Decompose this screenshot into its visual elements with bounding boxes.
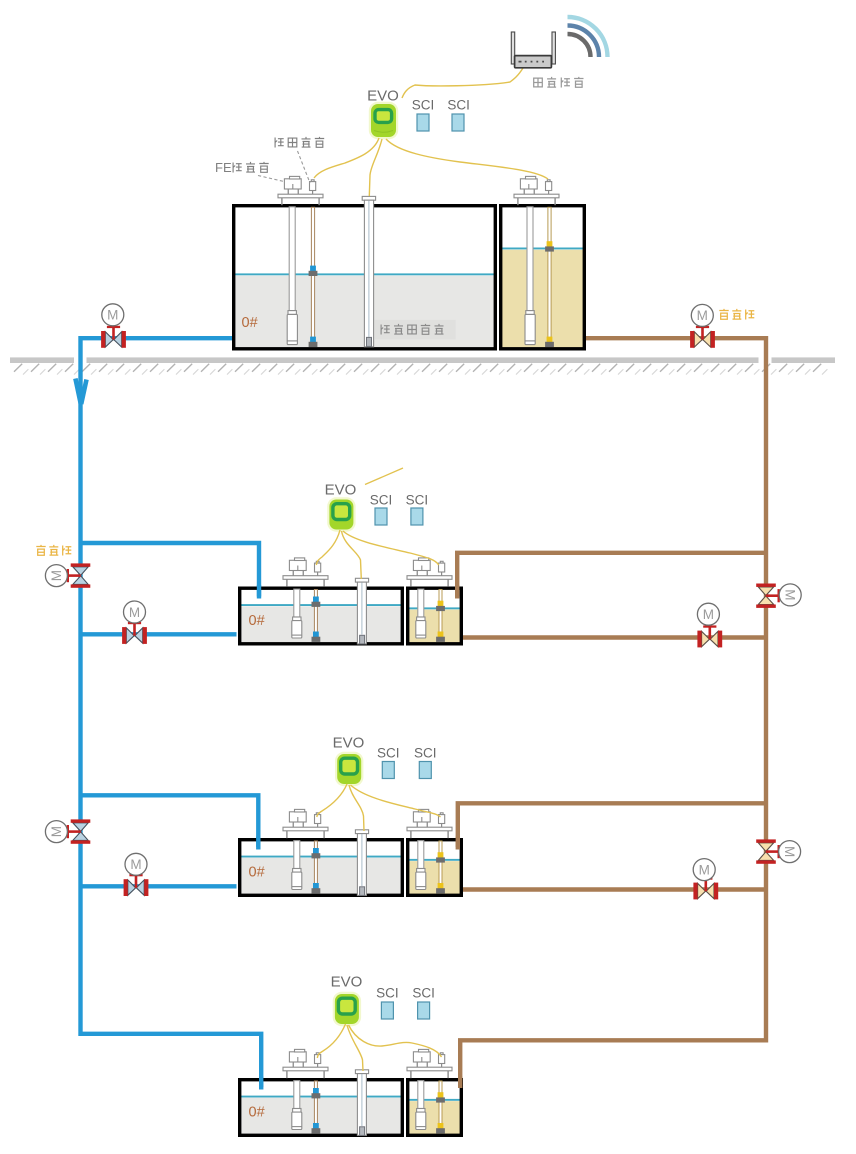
svg-text:0#: 0# xyxy=(242,315,258,331)
svg-text:SCI: SCI xyxy=(414,746,437,761)
svg-text:EVO: EVO xyxy=(331,974,363,991)
svg-text:SCI: SCI xyxy=(376,986,399,1001)
svg-text:SCI: SCI xyxy=(370,493,393,508)
svg-text:EVO: EVO xyxy=(333,735,365,752)
svg-text:0#: 0# xyxy=(249,1105,265,1121)
svg-text:0#: 0# xyxy=(249,613,265,629)
svg-text:SCI: SCI xyxy=(412,986,435,1001)
svg-text:SCI: SCI xyxy=(447,98,470,113)
svg-text:FE: FE xyxy=(215,160,232,175)
svg-text:SCI: SCI xyxy=(412,98,435,113)
svg-text:SCI: SCI xyxy=(377,746,400,761)
svg-text:EVO: EVO xyxy=(325,482,357,499)
svg-text:0#: 0# xyxy=(249,865,265,881)
svg-text:SCI: SCI xyxy=(406,493,429,508)
